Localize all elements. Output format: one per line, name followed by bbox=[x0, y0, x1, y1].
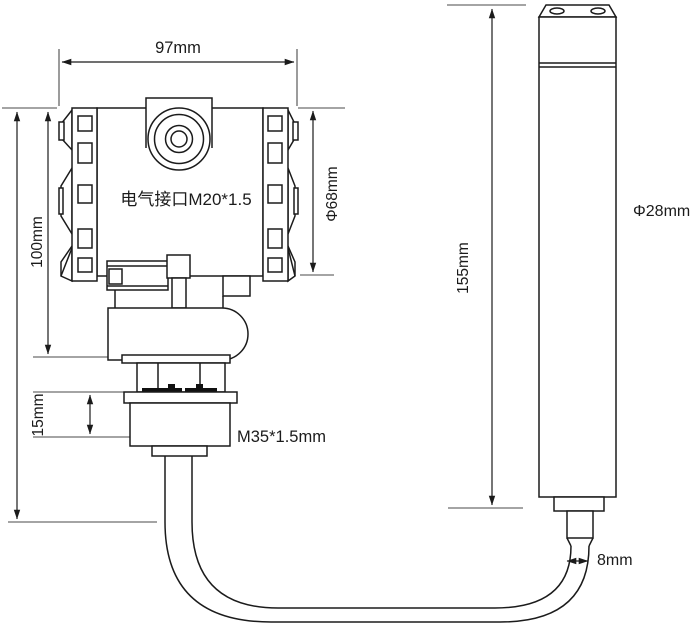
process-connection-drawing bbox=[108, 308, 248, 522]
electrical-interface-label: 电气接口M20*1.5 bbox=[116, 191, 256, 209]
head-right-ear bbox=[263, 108, 298, 281]
cable-drawing bbox=[165, 522, 589, 622]
dim-label-cable-diameter: 8mm bbox=[597, 552, 647, 570]
dim-label-probe-length: 155mm bbox=[455, 228, 473, 308]
dim-label-head-width: 97mm bbox=[138, 39, 218, 57]
probe-top-hole bbox=[550, 8, 564, 14]
dim-label-thread-spec: M35*1.5mm bbox=[237, 428, 347, 446]
probe-cable-fitting bbox=[567, 511, 593, 538]
hex-nut bbox=[137, 363, 225, 392]
dim-label-head-diameter: Φ68mm bbox=[324, 154, 342, 234]
dim-label-thread-length: 15mm bbox=[30, 375, 48, 455]
cable-inner-edge bbox=[192, 522, 571, 608]
thread-collar bbox=[152, 446, 207, 456]
connection-capsule bbox=[108, 308, 248, 360]
drawing-canvas bbox=[0, 0, 700, 629]
probe-top-hole bbox=[591, 8, 605, 14]
head-left-ear bbox=[59, 108, 97, 281]
probe-bottom-collar bbox=[554, 497, 604, 511]
thread-body-m35 bbox=[130, 403, 230, 446]
capsule-lip bbox=[122, 355, 230, 363]
dim-label-head-height: 100mm bbox=[29, 202, 47, 282]
dimension-diagram: 97mm 电气接口M20*1.5 Φ68mm 100mm 15mm M35*1.… bbox=[0, 0, 700, 629]
flange-plate bbox=[124, 392, 237, 403]
probe-body bbox=[539, 17, 616, 497]
probe-drawing bbox=[539, 5, 616, 546]
electrical-connector bbox=[146, 98, 212, 170]
cable-outer-edge bbox=[165, 522, 589, 622]
dim-label-probe-diameter: Φ28mm bbox=[633, 203, 699, 221]
